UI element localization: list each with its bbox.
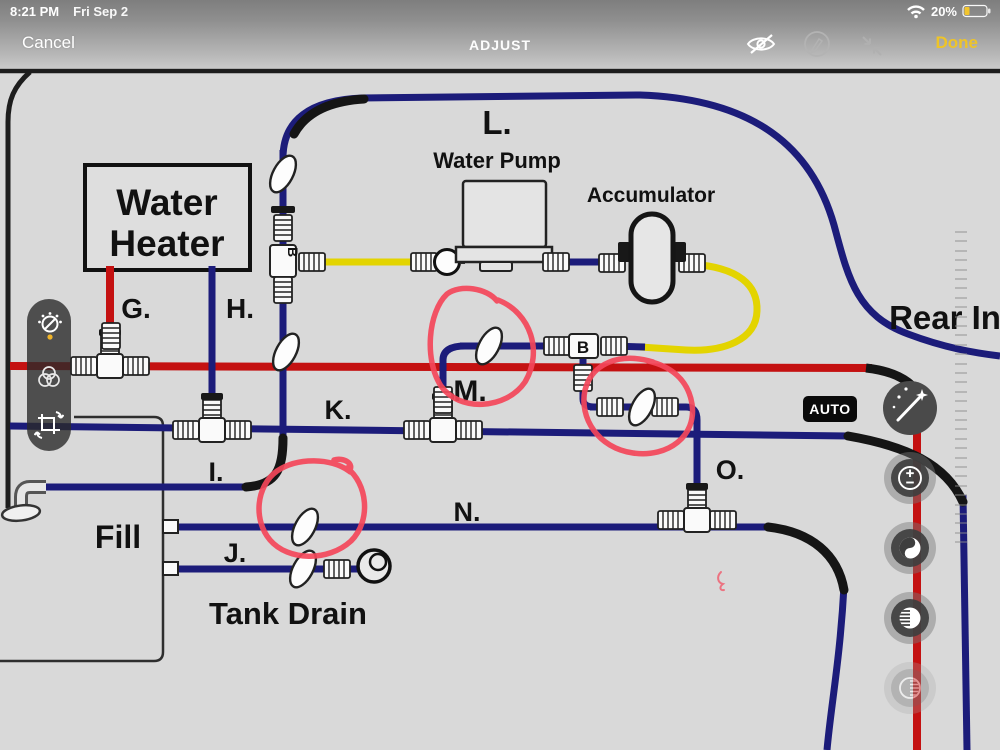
adjust-ticks[interactable]	[955, 231, 967, 547]
brilliance-button[interactable]	[884, 522, 936, 574]
crop-rotate-icon[interactable]	[27, 407, 71, 443]
wifi-icon	[906, 3, 926, 19]
filters-icon[interactable]	[27, 359, 71, 395]
highlights-icon	[884, 592, 936, 644]
svg-text:G.: G.	[121, 293, 151, 324]
edit-toolbar: Cancel ADJUST Done	[0, 22, 1000, 66]
edited-indicator-dot	[47, 334, 52, 339]
status-bar: 8:21 PM Fri Sep 2 20%	[0, 0, 1000, 22]
done-button[interactable]: Done	[936, 33, 979, 53]
auto-badge: AUTO	[803, 396, 857, 422]
battery-percent: 20%	[931, 4, 957, 19]
collapse-arrows-icon[interactable]	[855, 30, 889, 58]
exposure-icon	[884, 452, 936, 504]
auto-enhance-button[interactable]	[883, 381, 937, 435]
exposure-button[interactable]	[884, 452, 936, 504]
svg-text:B: B	[577, 338, 589, 357]
svg-text:Rear In: Rear In	[889, 299, 1000, 336]
magic-wand-icon	[883, 381, 937, 435]
top-chrome: 8:21 PM Fri Sep 2 20% Cancel ADJUST	[0, 0, 1000, 68]
adjust-dial-icon[interactable]	[27, 307, 71, 343]
svg-text:B: B	[285, 247, 301, 257]
svg-text:H.: H.	[226, 293, 254, 324]
water-pump-symbol	[411, 181, 569, 275]
svg-text:Accumulator: Accumulator	[587, 184, 715, 207]
svg-text:K.: K.	[325, 395, 352, 425]
svg-text:N.: N.	[454, 497, 481, 527]
edit-mode-switcher	[27, 299, 71, 451]
shadows-button[interactable]	[884, 662, 936, 714]
shadows-icon	[884, 662, 936, 714]
plumbing-diagram-photo: Water Heater L. Water Pump Accumulator G…	[0, 0, 1000, 750]
svg-text:Water Pump: Water Pump	[433, 148, 561, 173]
compare-eye-icon[interactable]	[744, 30, 778, 58]
status-time: 8:21 PM	[10, 4, 59, 19]
svg-text:I.: I.	[208, 457, 223, 487]
mode-title: ADJUST	[0, 37, 1000, 53]
svg-text:O.: O.	[716, 455, 745, 485]
svg-text:J.: J.	[224, 538, 247, 568]
status-date: Fri Sep 2	[73, 4, 128, 19]
battery-icon	[962, 3, 992, 19]
markup-pen-icon[interactable]	[800, 30, 834, 58]
svg-text:Fill: Fill	[95, 519, 141, 555]
brilliance-icon	[884, 522, 936, 574]
svg-text:Tank Drain: Tank Drain	[209, 596, 367, 631]
photo-canvas: Water Heater L. Water Pump Accumulator G…	[0, 0, 1000, 750]
highlights-button[interactable]	[884, 592, 936, 644]
accumulator-symbol	[599, 214, 705, 302]
svg-text:Water: Water	[116, 182, 217, 223]
svg-text:Heater: Heater	[109, 223, 224, 264]
svg-text:L.: L.	[482, 104, 511, 141]
